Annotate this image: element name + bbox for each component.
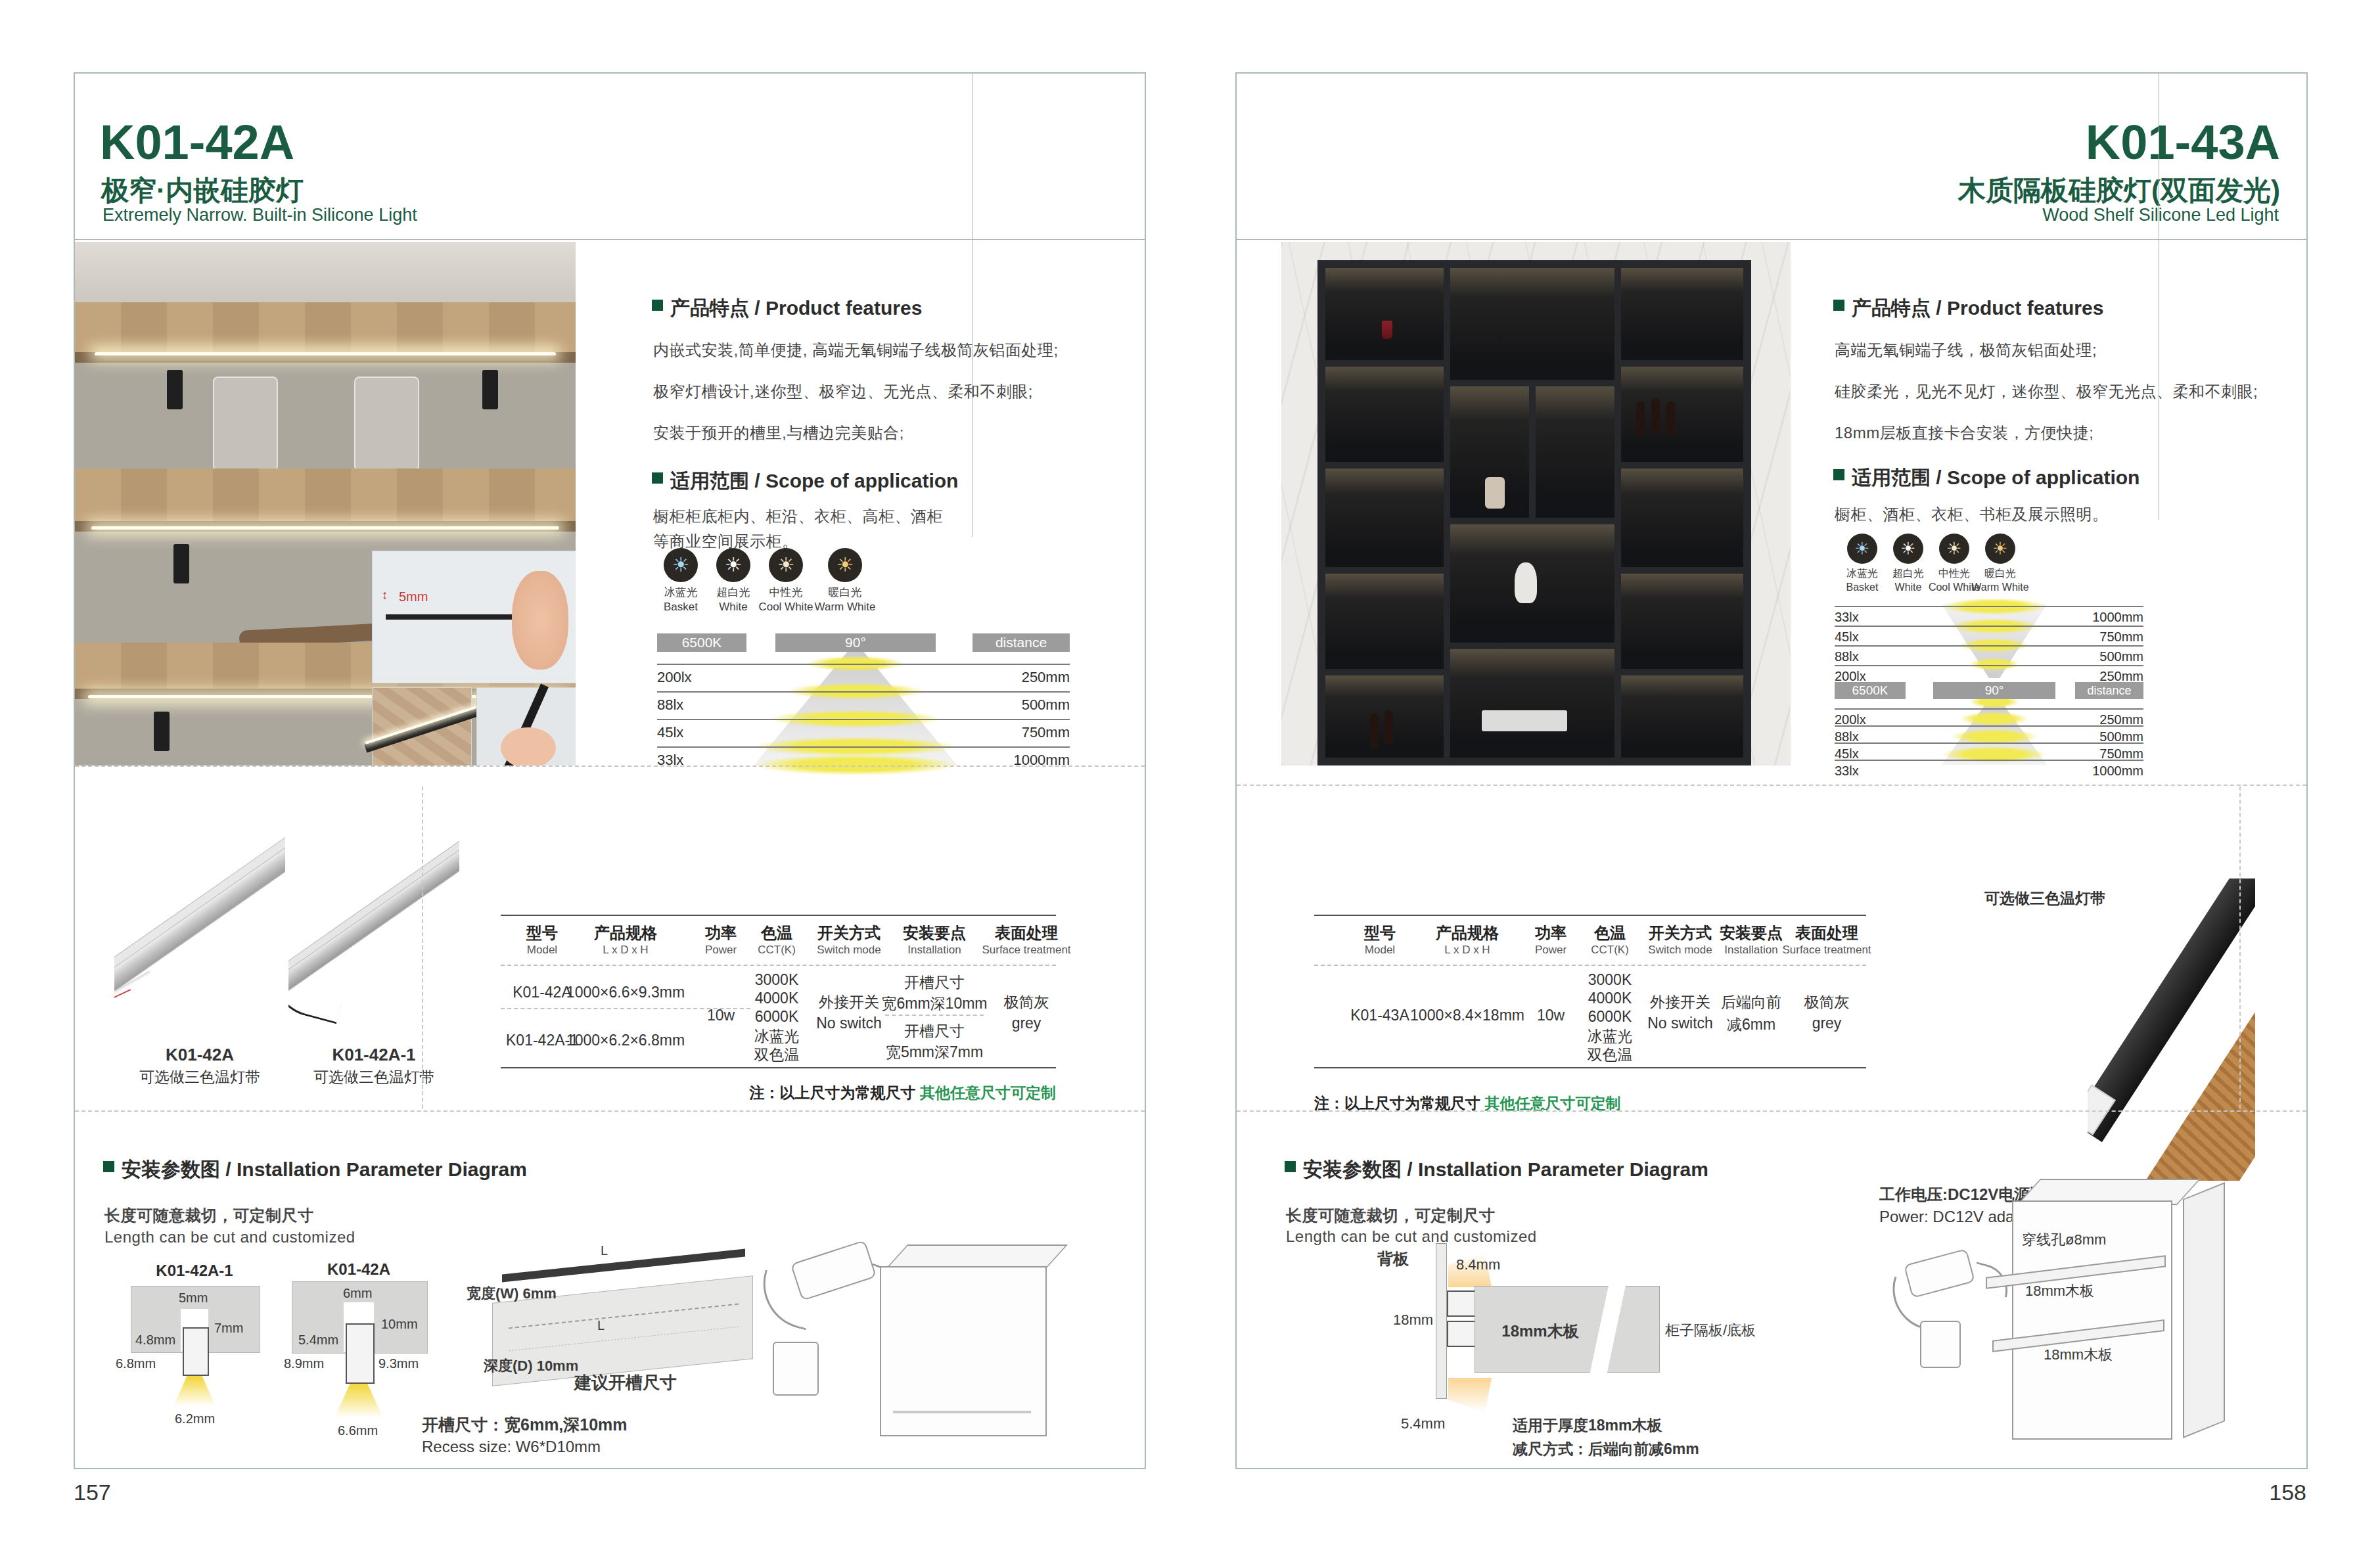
cabinet-cell xyxy=(1325,367,1444,462)
dim-slot-width: 5mm xyxy=(179,1290,208,1306)
lux-row-line xyxy=(1835,760,2143,761)
wine-bottle xyxy=(1666,401,1675,436)
cell-install: 开槽尺寸 xyxy=(904,972,965,993)
dim-slot-width: 6mm xyxy=(343,1286,372,1301)
feature-line: 极窄灯槽设计,迷你型、极窄边、无光点、柔和不刺眼; xyxy=(653,381,1033,402)
cell-install: 开槽尺寸 xyxy=(904,1021,965,1041)
page-number-right: 158 xyxy=(2247,1480,2306,1505)
cell-model: K01-42A xyxy=(513,984,572,1001)
lux-row-line xyxy=(1835,742,2143,744)
spec-table: 型号 Model 产品规格 L x D x H 功率 Power 色温 CCT(… xyxy=(501,915,1056,1112)
led-strip-light xyxy=(95,352,556,355)
page-subtitle-en: Wood Shelf Silicone Led Light xyxy=(2042,205,2279,225)
cct-bar: 6500K xyxy=(1835,682,1906,699)
table-bottom-line xyxy=(1314,1067,1866,1068)
beam-angle-bar: 90° xyxy=(1933,682,2055,699)
col-header-en: CCT(K) xyxy=(758,944,796,957)
features-heading: 产品特点 / Product features xyxy=(670,295,922,322)
scope-heading: 适用范围 / Scope of application xyxy=(1852,465,2140,491)
col-header: 产品规格 xyxy=(1436,923,1499,944)
header-divider xyxy=(1314,965,1866,966)
cell-surface-cn: 极简灰 xyxy=(1804,992,1850,1013)
distance-value: 750mm xyxy=(984,724,1070,741)
install-heading: 安装参数图 / Installation Parameter Diagram xyxy=(122,1156,527,1183)
lux-row-line xyxy=(657,664,1070,665)
section-separator xyxy=(1237,785,2306,786)
lux-value: 45lx xyxy=(657,724,683,741)
col-header-en: Model xyxy=(1365,944,1395,957)
cell-cct: 4000K xyxy=(1588,990,1632,1007)
shelf-bracket xyxy=(154,712,170,751)
table-top-line xyxy=(501,915,1056,916)
inset-photo-thickness: ↕ 5mm xyxy=(372,551,576,683)
col-header: 开关方式 xyxy=(1649,923,1712,944)
black-cable xyxy=(288,965,347,1024)
dim-board-width: 宽度(W) 6mm xyxy=(467,1284,557,1304)
diagram-label: K01-42A xyxy=(327,1260,390,1279)
dim-body-height: 6.8mm xyxy=(116,1356,156,1371)
product-label: K01-42A-1 xyxy=(332,1045,415,1065)
photo-container xyxy=(213,377,278,471)
col-header: 功率 xyxy=(705,923,737,944)
profile-top-face xyxy=(114,832,285,970)
hand-photo xyxy=(501,727,556,765)
shelf-bracket xyxy=(167,370,183,409)
inset-led-line xyxy=(365,705,478,744)
distance-value: 250mm xyxy=(984,669,1070,686)
section-bullet xyxy=(1833,300,1844,311)
recess-size-cn: 开槽尺寸：宽6mm,深10mm xyxy=(422,1414,628,1436)
dim-slot-depth: 7mm xyxy=(214,1321,243,1336)
profile-top-face xyxy=(288,833,459,970)
cabinet-cell xyxy=(1325,268,1444,360)
page-subtitle-cn: 木质隔板硅胶灯(双面发光) xyxy=(1958,172,2280,209)
col-header: 色温 xyxy=(761,923,792,944)
section-bullet xyxy=(103,1161,114,1172)
cell-model: K01-43A xyxy=(1350,1007,1409,1024)
col-header: 功率 xyxy=(1535,923,1567,944)
dim-18: 18mm xyxy=(1393,1312,1433,1329)
lux-value: 33lx xyxy=(1835,610,1859,625)
section-separator xyxy=(75,765,1145,767)
mode-label-cn: 暖白光 xyxy=(1957,567,2043,581)
dim-body-height2: 9.3mm xyxy=(378,1356,419,1371)
lux-row-line xyxy=(1835,626,2143,627)
feature-line: 安装于预开的槽里,与槽边完美贴合; xyxy=(653,422,904,444)
install-sub-cn: 长度可随意裁切，可定制尺寸 xyxy=(1286,1205,1496,1226)
install-heading: 安装参数图 / Installation Parameter Diagram xyxy=(1303,1156,1708,1183)
mode-label-en: Warm White xyxy=(802,600,888,614)
header-rule xyxy=(1237,239,2306,240)
cabinet-board-label: 18mm木板 xyxy=(2025,1281,2094,1301)
lux-row-line xyxy=(657,746,1070,748)
lux-value: 200lx xyxy=(657,669,692,686)
col-header-en: CCT(K) xyxy=(1591,944,1629,957)
page-right: K01-43A 木质隔板硅胶灯(双面发光) Wood Shelf Silicon… xyxy=(1235,72,2308,1469)
inset-photo-profile-in-wood xyxy=(372,687,472,765)
col-header-en: Switch mode xyxy=(817,944,881,957)
col-header-en: L x D x H xyxy=(1444,944,1490,957)
cabinet-side-face xyxy=(2183,1182,2225,1438)
col-header: 产品规格 xyxy=(594,923,657,944)
lux-value: 33lx xyxy=(1835,764,1859,779)
cabinet-led-strip xyxy=(893,1411,1031,1413)
sun-icon: ☀ xyxy=(1985,534,2015,564)
dim-bottom-width: 6.6mm xyxy=(338,1423,378,1438)
cell-cct: 双色温 xyxy=(1588,1045,1633,1065)
section-bullet xyxy=(1285,1161,1296,1172)
product-image-k01-43a xyxy=(2088,879,2255,1181)
spec-table: 型号 Model 产品规格 L x D x H 功率 Power 色温 CCT(… xyxy=(1314,915,1866,1112)
page-number-left: 157 xyxy=(74,1480,111,1505)
cell-install: 减6mm xyxy=(1727,1015,1775,1035)
distance-value: 1000mm xyxy=(2058,764,2143,779)
wine-bottle xyxy=(1651,398,1660,432)
col-header-en: Surface treatment xyxy=(982,944,1070,957)
wine-bottle xyxy=(1385,710,1393,744)
cell-switch-cn: 外接开关 xyxy=(819,992,879,1013)
scope-line: 橱柜、酒柜、衣柜、书柜及展示照明。 xyxy=(1835,504,2109,525)
dim-body-height: 8.9mm xyxy=(284,1356,324,1371)
feature-line: 高端无氧铜端子线，极简灰铝面处理; xyxy=(1835,340,2097,361)
page-subtitle-en: Extremely Narrow. Built-in Silicone Ligh… xyxy=(103,205,417,225)
cell-install: 后端向前 xyxy=(1721,992,1781,1013)
profile-cross-section xyxy=(346,1323,375,1384)
col-header: 表面处理 xyxy=(995,923,1058,944)
cell-switch-en: No switch xyxy=(816,1015,882,1032)
install-sub-en: Length can be cut and customized xyxy=(104,1228,355,1246)
wall-socket-drawing xyxy=(773,1342,819,1396)
wine-bottle xyxy=(1370,714,1379,748)
cell-cct: 双色温 xyxy=(754,1045,800,1065)
lux-row-line xyxy=(1835,725,2143,727)
lux-value: 45lx xyxy=(1835,629,1859,645)
product-photo-cabinet xyxy=(1281,242,1791,765)
distance-bar: distance xyxy=(973,633,1070,652)
catalog-spread: K01-42A 极窄·内嵌硅胶灯 Extremely Narrow. Built… xyxy=(0,0,2380,1552)
lux-row-line xyxy=(657,719,1070,720)
scope-heading: 适用范围 / Scope of application xyxy=(670,468,958,495)
led-strip-light xyxy=(91,526,559,530)
cs-note1: 适用于厚度18mm木板 xyxy=(1513,1415,1662,1436)
lux-row-line xyxy=(1835,708,2143,710)
shelf-label: 柜子隔板/底板 xyxy=(1665,1321,1756,1340)
col-header: 色温 xyxy=(1594,923,1626,944)
cabinet-cell xyxy=(1536,386,1614,518)
dim-board-depth: 深度(D) 10mm xyxy=(484,1356,578,1376)
cell-switch-en: No switch xyxy=(1647,1015,1713,1032)
lux-row-line xyxy=(1835,606,2143,607)
distance-value: 500mm xyxy=(2058,649,2143,664)
table-note: 注：以上尺寸为常规尺寸 其他任意尺寸可定制 xyxy=(501,1083,1056,1103)
col-header-en: Power xyxy=(1535,944,1567,957)
dim-slot-depth: 10mm xyxy=(381,1317,418,1332)
cell-cct: 4000K xyxy=(755,990,799,1007)
vase xyxy=(1485,477,1505,509)
mode-label-en: Warm White xyxy=(1957,581,2043,595)
col-header: 安装要点 xyxy=(1720,923,1783,944)
lux-row-line xyxy=(657,691,1070,693)
cable-hole-label: 穿线孔ø8mm xyxy=(2022,1230,2106,1250)
section-separator xyxy=(75,1110,1145,1112)
product-note: 可选做三色温灯带 xyxy=(139,1067,260,1087)
dim-length-top: L xyxy=(601,1243,608,1258)
cabinet-cell xyxy=(1621,268,1743,360)
cell-surface-en: grey xyxy=(1012,1015,1041,1032)
section-bullet xyxy=(652,300,663,311)
page-title: K01-42A xyxy=(100,114,294,170)
cell-cct: 6000K xyxy=(755,1008,799,1026)
books xyxy=(1482,710,1567,731)
lux-row-line xyxy=(1835,665,2143,666)
lux-value: 88lx xyxy=(1835,649,1859,664)
cabinet-cell xyxy=(1621,468,1743,567)
feature-line: 内嵌式安装,简单便捷, 高端无氧铜端子线极简灰铝面处理; xyxy=(653,340,1059,361)
light-mode-warm-white: ☀ 暖白光Warm White xyxy=(802,548,888,614)
hand-photo xyxy=(512,571,568,670)
cocktail-glass xyxy=(1382,321,1392,339)
section-bullet xyxy=(1833,469,1844,480)
cabinet-cell xyxy=(1621,675,1743,758)
back-panel xyxy=(1436,1243,1447,1399)
cell-cct: 冰蓝光 xyxy=(1588,1026,1633,1047)
dim-bottom-width: 6.2mm xyxy=(175,1411,215,1426)
diagram-label: K01-42A-1 xyxy=(156,1262,233,1280)
col-header: 型号 xyxy=(526,923,558,944)
col-header-en: Power xyxy=(705,944,737,957)
product-image-k01-42a xyxy=(114,810,285,1033)
product-image-k01-42a-1 xyxy=(288,810,459,1033)
inset-strip xyxy=(386,614,524,620)
profile-cross-section xyxy=(183,1327,209,1376)
cell-surface-en: grey xyxy=(1812,1015,1842,1032)
cell-power: 10w xyxy=(1537,1007,1565,1024)
light-glow xyxy=(334,1384,383,1418)
light-pool xyxy=(1960,712,2028,726)
table-top-line xyxy=(1314,915,1866,916)
board-caption: 建议开槽尺寸 xyxy=(574,1371,677,1394)
column-separator xyxy=(2239,787,2241,1108)
accent-vline xyxy=(2159,74,2159,520)
col-header: 型号 xyxy=(1364,923,1396,944)
cabinet-cell xyxy=(1450,268,1614,380)
distance-value: 750mm xyxy=(2058,629,2143,645)
cell-install: 宽5mm深7mm xyxy=(886,1042,983,1062)
light-mode-warm-white: ☀ 暖白光Warm White xyxy=(1957,534,2043,595)
sun-icon: ☀ xyxy=(769,548,803,582)
photo-ceiling xyxy=(75,242,576,304)
section-separator xyxy=(1237,1110,2306,1112)
board-label: 18mm木板 xyxy=(1501,1321,1578,1342)
inset-arrow-icon: ↕ xyxy=(382,588,388,603)
sun-icon: ☀ xyxy=(828,548,862,582)
col-header-en: Installation xyxy=(1724,944,1777,957)
install-sub-en: Length can be cut and customized xyxy=(1286,1227,1537,1246)
shelf-bracket xyxy=(482,370,498,409)
page-title: K01-43A xyxy=(2086,114,2280,170)
note-green: 其他任意尺寸可定制 xyxy=(1484,1095,1620,1112)
page-left: K01-42A 极窄·内嵌硅胶灯 Extremely Narrow. Built… xyxy=(74,72,1146,1469)
header-divider xyxy=(501,965,1056,966)
display-cabinet xyxy=(1317,260,1751,765)
distance-value: 1000mm xyxy=(2058,610,2143,625)
shelf-bracket xyxy=(173,544,189,583)
col-header-en: Surface treatment xyxy=(1782,944,1871,957)
cs-note2: 减尺方式：后端向前减6mm xyxy=(1513,1439,1699,1459)
cct-bar: 6500K xyxy=(657,633,746,652)
lux-value: 88lx xyxy=(657,696,683,714)
column-separator xyxy=(422,787,423,1108)
product-label: K01-42A xyxy=(166,1045,234,1065)
dim-inner-width: 5.4mm xyxy=(298,1333,338,1348)
header-rule xyxy=(75,239,1145,240)
distance-value: 500mm xyxy=(984,696,1070,714)
photo-shelf-middle xyxy=(75,468,576,532)
dim-length-inner: L xyxy=(597,1318,605,1333)
cell-cct: 冰蓝光 xyxy=(754,1026,800,1047)
feature-line: 18mm层板直接卡合安装，方便快捷; xyxy=(1835,422,2094,444)
col-header-en: Switch mode xyxy=(1648,944,1712,957)
cabinet-cell xyxy=(1450,649,1614,758)
cabinet-cell xyxy=(1621,574,1743,669)
feature-line: 硅胶柔光，见光不见灯，迷你型、极窄无光点、柔和不刺眼; xyxy=(1835,381,2258,402)
cell-switch-cn: 外接开关 xyxy=(1650,992,1710,1013)
mode-label-cn: 暖白光 xyxy=(802,585,888,600)
cell-cct: 3000K xyxy=(1588,971,1632,989)
note-green: 其他任意尺寸可定制 xyxy=(920,1084,1056,1101)
col-header: 表面处理 xyxy=(1795,923,1858,944)
lux-row-line xyxy=(1835,645,2143,647)
cell-power: 10w xyxy=(707,1007,735,1024)
cabinet-cell xyxy=(1325,468,1444,567)
cell-surface-cn: 极简灰 xyxy=(1004,992,1049,1013)
inset-photo-hand-strip xyxy=(476,687,576,765)
cell-size: 1000×6.2×6.8mm xyxy=(566,1032,685,1049)
cell-cct: 3000K xyxy=(755,971,799,989)
cell-install: 宽6mm深10mm xyxy=(881,993,987,1014)
features-heading: 产品特点 / Product features xyxy=(1852,295,2103,322)
accent-vline xyxy=(972,74,973,537)
cell-cct: 6000K xyxy=(1588,1008,1632,1026)
light-glow xyxy=(173,1376,216,1406)
section-bullet xyxy=(652,472,663,484)
profile-upper xyxy=(1447,1290,1476,1317)
product-note: 可选做三色温灯带 xyxy=(313,1067,434,1087)
cabinet-cell xyxy=(1325,574,1444,669)
col-header: 开关方式 xyxy=(817,923,881,944)
light-wedge-down xyxy=(1448,1378,1492,1412)
note-black: 注：以上尺寸为常规尺寸 xyxy=(750,1084,920,1101)
inset-profile-strip xyxy=(364,708,479,753)
cell-size: 1000×8.4×18mm xyxy=(1410,1007,1524,1024)
wine-bottle xyxy=(1636,401,1645,436)
dim-5-4: 5.4mm xyxy=(1401,1415,1445,1432)
note-black: 注：以上尺寸为常规尺寸 xyxy=(1314,1095,1484,1112)
wall-socket-drawing xyxy=(1920,1321,1961,1368)
cabinet-board-label: 18mm木板 xyxy=(2044,1345,2113,1365)
recess-size-en: Recess size: W6*D10mm xyxy=(422,1438,601,1456)
inset-dim-label: 5mm xyxy=(399,589,428,605)
install-sub-cn: 长度可随意裁切，可定制尺寸 xyxy=(104,1205,314,1226)
figurine xyxy=(1515,562,1537,603)
light-pool xyxy=(1969,658,2019,671)
beam-angle-bar: 90° xyxy=(775,633,936,652)
cell-size: 1000×6.6×9.3mm xyxy=(566,984,685,1001)
col-header-en: Model xyxy=(527,944,557,957)
profile-lower xyxy=(1447,1321,1476,1347)
distance-bar: distance xyxy=(2075,682,2143,699)
light-pool xyxy=(754,754,957,775)
back-panel-label: 背板 xyxy=(1377,1248,1409,1269)
page-subtitle-cn: 极窄·内嵌硅胶灯 xyxy=(101,172,304,209)
product-photo-shelves: ↕ 5mm xyxy=(75,242,576,765)
scope-line: 橱柜柜底柜内、柜沿、衣柜、高柜、酒柜 xyxy=(653,506,943,527)
col-header: 安装要点 xyxy=(903,923,966,944)
table-bottom-line xyxy=(501,1067,1056,1068)
dim-8-4: 8.4mm xyxy=(1456,1256,1500,1273)
dim-inner-width: 4.8mm xyxy=(135,1333,175,1348)
profile-strip-above xyxy=(502,1249,745,1283)
col-header-en: Installation xyxy=(907,944,961,957)
col-header-en: L x D x H xyxy=(603,944,648,957)
photo-container xyxy=(354,377,419,471)
install-divider xyxy=(885,1015,984,1016)
